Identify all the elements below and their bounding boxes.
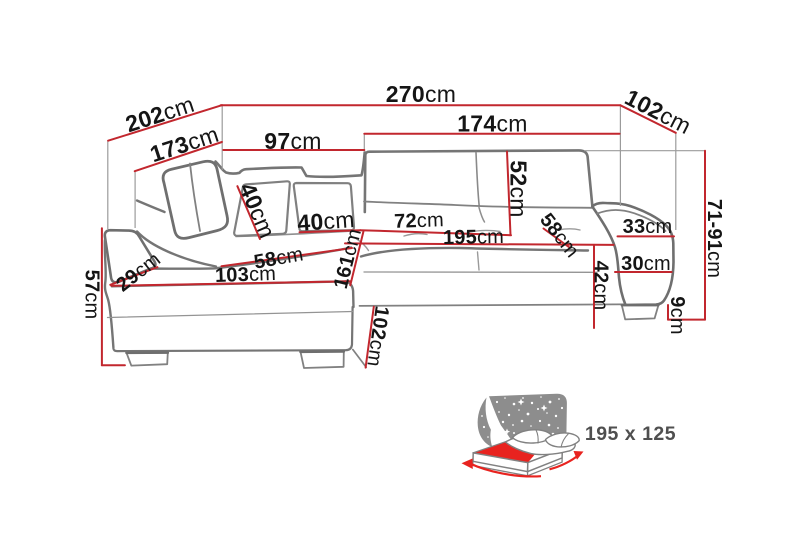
- svg-text:33cm: 33cm: [623, 216, 673, 238]
- svg-text:52cm: 52cm: [506, 160, 532, 217]
- svg-text:72cm: 72cm: [394, 209, 444, 233]
- svg-text:103cm: 103cm: [215, 263, 277, 287]
- svg-text:195 x 125: 195 x 125: [585, 423, 676, 445]
- svg-text:195cm: 195cm: [443, 226, 504, 249]
- svg-text:174cm: 174cm: [457, 111, 528, 137]
- svg-text:30cm: 30cm: [621, 253, 671, 275]
- svg-text:42cm: 42cm: [590, 261, 612, 311]
- svg-text:9cm: 9cm: [666, 296, 688, 334]
- svg-text:270cm: 270cm: [386, 81, 457, 107]
- svg-text:97cm: 97cm: [264, 128, 321, 154]
- svg-text:57cm: 57cm: [81, 270, 103, 320]
- svg-text:71-91cm: 71-91cm: [703, 199, 725, 278]
